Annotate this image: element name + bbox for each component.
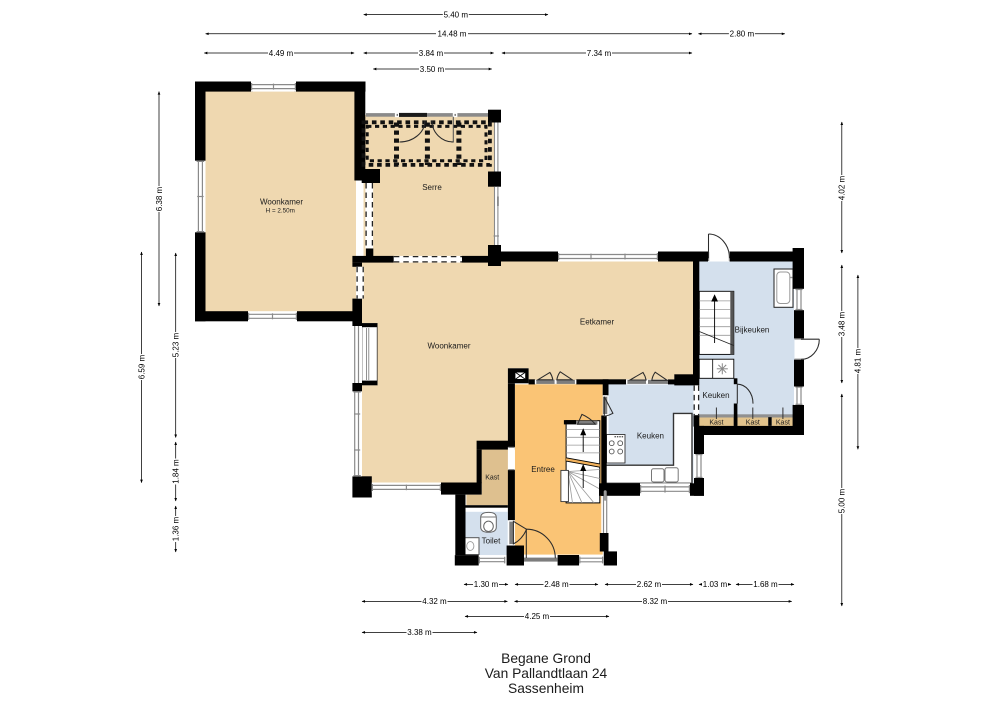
svg-text:2.62 m: 2.62 m [637, 580, 662, 589]
svg-text:Sassenheim: Sassenheim [508, 681, 584, 696]
svg-text:3.84 m: 3.84 m [419, 49, 444, 58]
svg-text:1.03 m: 1.03 m [703, 580, 728, 589]
svg-text:4.81 m: 4.81 m [854, 348, 863, 373]
svg-text:4.32 m: 4.32 m [422, 597, 447, 606]
svg-text:2.80 m: 2.80 m [730, 30, 755, 39]
svg-text:3.48 m: 3.48 m [838, 311, 847, 336]
svg-text:2.48 m: 2.48 m [544, 580, 569, 589]
svg-text:Keuken: Keuken [637, 432, 664, 441]
svg-text:Toilet: Toilet [482, 537, 501, 546]
svg-text:4.25 m: 4.25 m [525, 612, 550, 621]
svg-text:14.48 m: 14.48 m [438, 30, 467, 39]
svg-text:Van Pallandtlaan 24: Van Pallandtlaan 24 [485, 666, 608, 681]
svg-text:6.38 m: 6.38 m [155, 186, 164, 211]
svg-text:3.50 m: 3.50 m [420, 65, 445, 74]
svg-text:Kast: Kast [485, 475, 499, 482]
svg-text:1.30 m: 1.30 m [474, 580, 499, 589]
svg-text:Entree: Entree [531, 465, 555, 474]
svg-text:5.40 m: 5.40 m [444, 10, 469, 19]
svg-text:H = 2.50m: H = 2.50m [266, 208, 295, 215]
svg-text:4.02 m: 4.02 m [838, 175, 847, 200]
svg-text:Kast: Kast [776, 420, 790, 427]
svg-text:Keuken: Keuken [702, 391, 729, 400]
svg-text:6.59 m: 6.59 m [137, 354, 146, 379]
svg-text:3.38 m: 3.38 m [407, 628, 432, 637]
svg-text:5.00 m: 5.00 m [838, 488, 847, 513]
svg-text:Kast: Kast [709, 420, 723, 427]
svg-text:Kast: Kast [746, 420, 760, 427]
svg-text:7.34 m: 7.34 m [587, 49, 612, 58]
svg-text:1.36 m: 1.36 m [172, 516, 181, 541]
svg-text:1.84 m: 1.84 m [172, 459, 181, 484]
svg-text:Eetkamer: Eetkamer [580, 317, 615, 326]
svg-text:8.32 m: 8.32 m [643, 597, 668, 606]
svg-text:Bijkeuken: Bijkeuken [735, 326, 770, 335]
svg-text:1.68 m: 1.68 m [753, 580, 778, 589]
svg-text:Woonkamer: Woonkamer [260, 197, 303, 206]
svg-text:Begane Grond: Begane Grond [501, 651, 591, 666]
svg-text:4.49 m: 4.49 m [269, 49, 294, 58]
svg-text:5.23 m: 5.23 m [172, 332, 181, 357]
svg-text:Woonkamer: Woonkamer [428, 342, 471, 351]
svg-text:Serre: Serre [422, 183, 442, 192]
